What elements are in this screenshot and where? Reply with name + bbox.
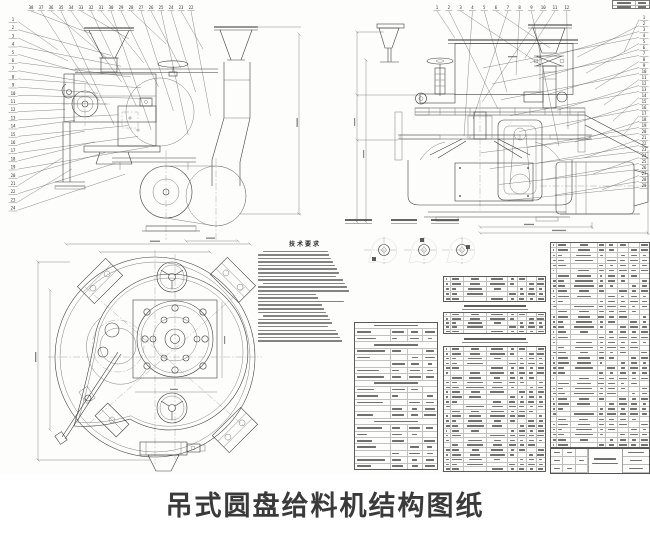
table-cell (507, 317, 516, 320)
view-cross-section (345, 24, 650, 235)
callout-number: 18 (11, 156, 16, 161)
notes-text-line (263, 251, 328, 253)
corner-fragment-table (612, 0, 650, 9)
table-cell (463, 410, 487, 414)
table-cell (407, 438, 422, 443)
table-cell (517, 410, 526, 414)
leader-line (548, 68, 639, 95)
callout-number: 4 (643, 33, 646, 38)
table-cell (556, 371, 571, 375)
table-cell (507, 297, 516, 301)
table-cell (450, 326, 463, 329)
table-cell (639, 258, 649, 262)
table-cell (526, 453, 535, 457)
table-cell (355, 336, 390, 341)
table-cell (570, 428, 597, 432)
table-cell (556, 407, 571, 411)
table-cell (517, 463, 526, 467)
table-cell (507, 395, 516, 399)
view-plan (35, 241, 262, 471)
table-cell (450, 297, 463, 301)
table-cell (355, 400, 390, 405)
notes-text-line (258, 276, 336, 278)
callout-number: 28 (642, 177, 647, 182)
table-cell (355, 387, 390, 392)
table-cell (517, 395, 526, 399)
table-cell (517, 443, 526, 447)
table-cell (517, 321, 526, 324)
table-cell (422, 368, 437, 373)
table-cell (517, 376, 526, 380)
callout-number: 13 (11, 115, 16, 120)
table-cell (605, 294, 617, 298)
table-cell (407, 393, 422, 398)
leader-line (41, 11, 99, 101)
view-side-elevation (55, 27, 301, 243)
leader-line (546, 164, 639, 180)
table-cell (570, 387, 597, 391)
leader-line (575, 122, 639, 143)
leader-line (191, 11, 210, 116)
table-cell (570, 356, 597, 360)
table-cell (597, 351, 605, 355)
table-cell (556, 274, 571, 278)
leader-line (537, 146, 639, 164)
callout-number: 23 (642, 147, 647, 152)
table-cell (597, 258, 605, 262)
table-cell (597, 325, 605, 329)
table-cell (486, 297, 507, 301)
table-cell (597, 366, 605, 370)
table-cell (390, 400, 407, 405)
table-cell (407, 412, 422, 417)
callout-number: 7 (12, 66, 15, 71)
table-cell (450, 376, 463, 380)
table-cell (605, 248, 617, 252)
table-cell (605, 274, 617, 278)
table-cell (517, 381, 526, 385)
table-cell (628, 422, 639, 426)
table-cell (617, 433, 628, 437)
table-cell (628, 335, 639, 339)
table-cell (463, 313, 487, 316)
table-cell (517, 277, 526, 281)
table-cell (536, 424, 545, 428)
callout-number: 1 (436, 5, 439, 10)
callout-number: 12 (11, 107, 16, 112)
notes-text-line (258, 272, 339, 274)
table-cell (536, 419, 545, 423)
table-cell (628, 443, 639, 447)
technical-notes: 技术要求 (258, 239, 352, 371)
table-cell (570, 407, 597, 411)
table-cell (605, 243, 617, 247)
leader-line (31, 11, 92, 34)
callout-number: 35 (59, 5, 64, 10)
table-cell (556, 438, 571, 442)
table-cell (526, 458, 535, 462)
table-cell (450, 453, 463, 457)
title-block (550, 448, 650, 474)
notes-text-line (258, 297, 318, 299)
leader-line (577, 26, 639, 58)
table-cell (536, 467, 545, 471)
table-cell (486, 434, 507, 438)
table-cell (570, 284, 597, 288)
table-cell (517, 366, 526, 370)
table-cell (628, 351, 639, 355)
callout-number: 33 (79, 5, 84, 10)
table-cell (486, 467, 507, 471)
table-cell (639, 253, 649, 257)
notes-text-line (258, 265, 335, 267)
table-cell (507, 366, 516, 370)
table-cell (450, 414, 463, 418)
notes-title: 技术要求 (258, 239, 352, 248)
callout-number: 24 (11, 206, 16, 211)
table-cell (450, 292, 463, 296)
callout-number: 22 (642, 141, 647, 146)
table-cell (507, 414, 516, 418)
table-cell (536, 352, 545, 356)
notes-text-line (263, 315, 328, 317)
callout-number: 22 (189, 5, 194, 10)
table-cell (526, 361, 535, 365)
table-cell (628, 438, 639, 442)
table-cell (597, 402, 605, 406)
table-cell (597, 340, 605, 344)
table-cell (390, 387, 407, 392)
leader-line (613, 98, 639, 121)
table-cell (556, 330, 571, 334)
table-cell (605, 422, 617, 426)
callout-number: 8 (12, 74, 15, 79)
table-cell (597, 346, 605, 350)
table-cell (517, 438, 526, 442)
table-cell (526, 347, 535, 351)
table-cell (617, 402, 628, 406)
leader-line (593, 158, 639, 174)
notes-text-line (258, 330, 336, 332)
leader-line (161, 11, 188, 135)
table-cell (628, 407, 639, 411)
table-cell (463, 321, 487, 324)
table-cell (617, 387, 628, 391)
table-cell (463, 326, 487, 329)
notes-text-line (258, 290, 349, 292)
table-cell (517, 453, 526, 457)
table-cell (355, 355, 390, 360)
table-cell (570, 392, 597, 396)
leader-line (18, 46, 121, 66)
table-cell (628, 315, 639, 319)
table-cell (507, 438, 516, 442)
table-cell (628, 284, 639, 288)
callout-number: 29 (642, 183, 647, 188)
table-cell (639, 335, 649, 339)
table-cell (605, 264, 617, 268)
table-cell (507, 410, 516, 414)
table-cell (422, 361, 437, 366)
table-cell (570, 299, 597, 303)
table-cell (450, 381, 463, 385)
callout-number: 21 (11, 181, 16, 186)
table-cell (570, 279, 597, 283)
table-cell (450, 419, 463, 423)
table-cell (639, 412, 649, 416)
table-cell (570, 305, 597, 309)
table-cell (390, 451, 407, 456)
table-cell (617, 310, 628, 314)
table-cell (628, 361, 639, 365)
table-cell (450, 282, 463, 286)
table-cell (486, 429, 507, 433)
callout-number: 25 (159, 5, 164, 10)
callout-number: 12 (642, 81, 647, 86)
callout-number: 9 (643, 63, 646, 68)
table-cell (597, 433, 605, 437)
table-cell (463, 297, 487, 301)
table-cell (605, 438, 617, 442)
table-cell (628, 356, 639, 360)
table-cell (617, 264, 628, 268)
detail-view-3 (442, 237, 476, 264)
table-cell (517, 282, 526, 286)
table-cell (570, 402, 597, 406)
table-cell (526, 448, 535, 452)
table-cell (486, 313, 507, 316)
table-cell (526, 287, 535, 291)
table-cell (407, 361, 422, 366)
table-cell (617, 356, 628, 360)
table-cell (526, 405, 535, 409)
table-cell (570, 340, 597, 344)
table-cell (486, 405, 507, 409)
table-cell (450, 317, 463, 320)
table-cell (639, 366, 649, 370)
table-cell (605, 412, 617, 416)
table-cell (605, 443, 617, 447)
table-cell (597, 407, 605, 411)
table-cell (628, 299, 639, 303)
table-row (444, 297, 545, 301)
table-cell (639, 320, 649, 324)
table-cell (526, 381, 535, 385)
table-cell (597, 335, 605, 339)
table-cell (463, 414, 487, 418)
table-cell (628, 371, 639, 375)
table-cell (597, 294, 605, 298)
table-cell (570, 422, 597, 426)
table-cell (605, 315, 617, 319)
table-cell (486, 357, 507, 361)
notes-text-line (258, 254, 329, 256)
table-cell (422, 336, 437, 341)
table-cell (450, 313, 463, 316)
table-cell (597, 284, 605, 288)
table-cell (605, 279, 617, 283)
table-cell (617, 376, 628, 380)
table-cell (628, 269, 639, 273)
table-cell (605, 433, 617, 437)
table-cell (628, 274, 639, 278)
table-cell (556, 356, 571, 360)
table-cell (526, 467, 535, 471)
table-cell (450, 352, 463, 356)
table-cell (570, 381, 597, 385)
table-cell (486, 321, 507, 324)
table-cell (556, 443, 571, 447)
table-cell (570, 376, 597, 380)
crank-handle (55, 352, 121, 444)
table-cell (526, 326, 535, 329)
table-cell (422, 425, 437, 430)
table-cell (450, 410, 463, 414)
table-cell (390, 406, 407, 411)
handwheel-bottom (157, 393, 187, 423)
leader-line (501, 74, 639, 100)
table-cell (450, 357, 463, 361)
table-cell (605, 376, 617, 380)
table-cell (422, 329, 437, 334)
table-cell (628, 320, 639, 324)
table-cell (407, 444, 422, 449)
table-cell (486, 292, 507, 296)
table-cell (617, 253, 628, 257)
table-cell (390, 412, 407, 417)
table-cell (605, 371, 617, 375)
table-cell (628, 402, 639, 406)
table-cell (463, 419, 487, 423)
leader-line (586, 44, 639, 74)
table-cell (570, 351, 597, 355)
table-cell (570, 269, 597, 273)
callout-number: 1 (643, 15, 646, 20)
table-cell (570, 294, 597, 298)
table-cell (628, 392, 639, 396)
notes-text-line (258, 322, 332, 324)
table-cell (422, 400, 437, 405)
callout-number: 17 (11, 148, 16, 153)
table-cell (507, 282, 516, 286)
table-cell (450, 371, 463, 375)
table-cell (639, 310, 649, 314)
table-cell (517, 429, 526, 433)
table-cell (517, 424, 526, 428)
table-cell (450, 443, 463, 447)
table-cell (526, 463, 535, 467)
leader-line (604, 80, 639, 106)
table-cell (597, 253, 605, 257)
table-cell (639, 381, 649, 385)
table-cell (639, 248, 649, 252)
table-cell (463, 395, 487, 399)
table-cell (407, 457, 422, 462)
table-cell (507, 463, 516, 467)
table-cell (507, 326, 516, 329)
table-cell (628, 397, 639, 401)
callout-number: 11 (642, 75, 647, 80)
table-cell (628, 417, 639, 421)
table-cell (507, 400, 516, 404)
leader-line (18, 115, 118, 120)
table-cell (556, 351, 571, 355)
detail-captions (345, 219, 459, 224)
table-cell (526, 414, 535, 418)
table-cell (450, 429, 463, 433)
table-cell (639, 438, 649, 442)
table-cell (556, 299, 571, 303)
spec-table (354, 322, 438, 470)
table-cell (597, 443, 605, 447)
callout-number: 10 (541, 5, 546, 10)
table-cell (526, 357, 535, 361)
leader-line (151, 11, 181, 68)
table-cell (605, 305, 617, 309)
table-cell (507, 313, 516, 316)
table-cell (463, 376, 487, 380)
table-cell (526, 429, 535, 433)
table-cell (536, 366, 545, 370)
callout-number: 31 (99, 5, 104, 10)
table-cell (486, 366, 507, 370)
leader-line (602, 176, 639, 190)
notes-text-line (258, 294, 316, 296)
table-cell (507, 321, 516, 324)
table-cell (507, 376, 516, 380)
leader-line (484, 11, 507, 92)
callout-number: 16 (11, 140, 16, 145)
table-cell (463, 277, 487, 281)
table-cell (536, 326, 545, 329)
table-cell (605, 402, 617, 406)
table-cell (517, 313, 526, 316)
table-cell (570, 248, 597, 252)
table-cell (517, 297, 526, 301)
table-cell (556, 243, 571, 247)
leader-line (624, 20, 639, 53)
callout-number: 9 (12, 83, 15, 88)
table-cell (556, 305, 571, 309)
table-cell (617, 305, 628, 309)
leader-line (18, 109, 65, 111)
table-row (355, 464, 437, 469)
parts-table-c-title (443, 338, 546, 343)
leader-line (492, 56, 639, 84)
table-cell (628, 248, 639, 252)
image-caption: 吊式圆盘给料机结构图纸 (0, 482, 650, 524)
table-cell (628, 387, 639, 391)
table-cell (556, 284, 571, 288)
table-cell (597, 356, 605, 360)
table-cell (597, 305, 605, 309)
callout-number: 1 (12, 17, 15, 22)
table-cell (617, 294, 628, 298)
table-cell (639, 397, 649, 401)
table-cell (486, 277, 507, 281)
callout-number: 10 (11, 91, 16, 96)
table-cell (605, 253, 617, 257)
table-cell (536, 443, 545, 447)
table-cell (517, 326, 526, 329)
table-cell (639, 305, 649, 309)
table-cell (597, 412, 605, 416)
table-cell (570, 412, 597, 416)
table-cell (597, 422, 605, 426)
table-cell (463, 458, 487, 462)
table-cell (463, 287, 487, 291)
callout-number: 14 (11, 124, 16, 129)
